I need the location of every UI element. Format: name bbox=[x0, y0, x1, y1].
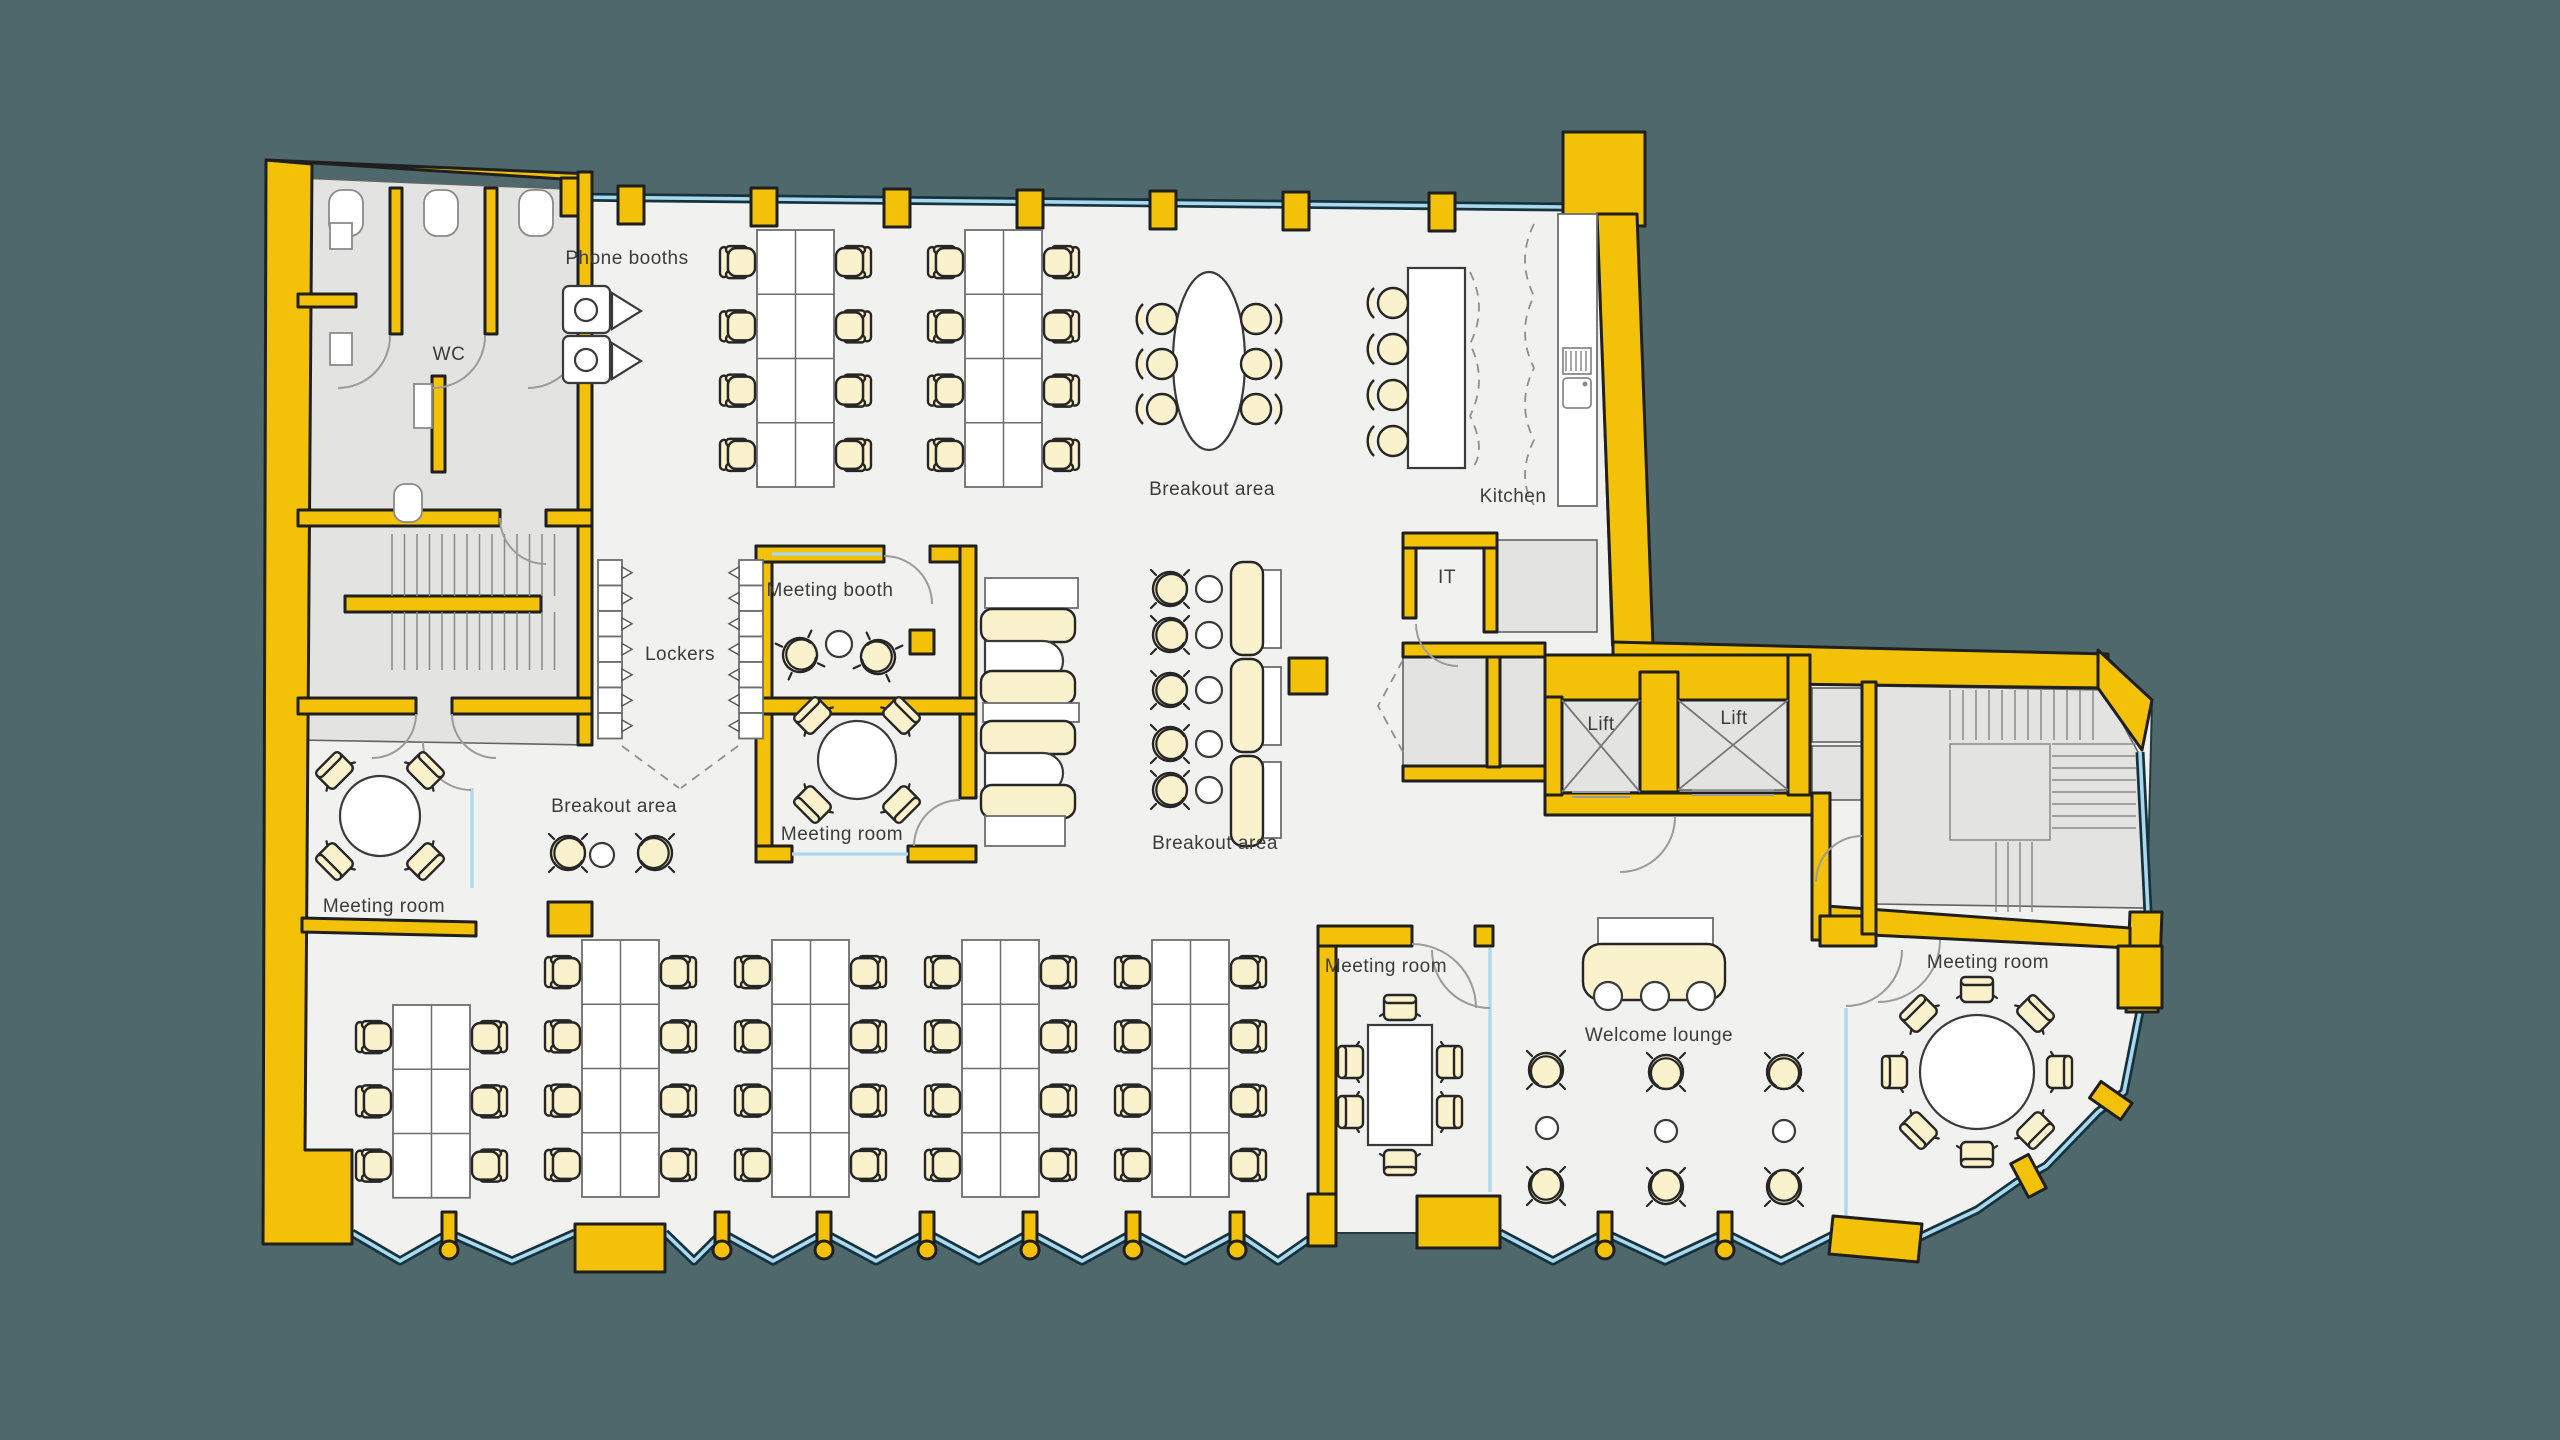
stool-chair bbox=[1368, 288, 1408, 318]
locker bbox=[598, 688, 622, 714]
office-chair bbox=[851, 1020, 886, 1052]
locker bbox=[598, 586, 622, 612]
office-chair bbox=[661, 1020, 696, 1052]
meeting-chair bbox=[1380, 995, 1420, 1020]
office-chair bbox=[356, 1085, 391, 1117]
office-chair bbox=[1044, 375, 1079, 407]
office-chair bbox=[356, 1021, 391, 1053]
label-breakout-top: Breakout area bbox=[1149, 479, 1275, 500]
office-chair bbox=[735, 1085, 770, 1117]
locker bbox=[739, 611, 763, 637]
round-table bbox=[1920, 1015, 2034, 1129]
armchair bbox=[1765, 1168, 1803, 1206]
meeting-chair bbox=[1437, 1042, 1462, 1082]
round-table bbox=[818, 721, 896, 799]
office-chair bbox=[1115, 956, 1150, 988]
stool-chair bbox=[1137, 394, 1177, 424]
label-meeting-room-bottom: Meeting room bbox=[1325, 956, 1447, 977]
desk-bank bbox=[1152, 940, 1229, 1197]
kitchen-island bbox=[1408, 268, 1465, 468]
riser-zone-center bbox=[1403, 650, 1545, 768]
locker bbox=[739, 713, 763, 739]
label-lift-right: Lift bbox=[1720, 708, 1748, 729]
label-breakout-middle: Breakout area bbox=[1152, 833, 1278, 854]
floor-plan: Phone booths WC Breakout area Kitchen IT… bbox=[0, 0, 2560, 1440]
office-chair bbox=[545, 956, 580, 988]
locker bbox=[598, 611, 622, 637]
desk-bank bbox=[965, 230, 1042, 487]
office-chair bbox=[356, 1150, 391, 1182]
oval-table bbox=[1173, 272, 1245, 450]
office-chair bbox=[836, 439, 871, 471]
office-chair bbox=[1231, 1149, 1266, 1181]
side-table bbox=[1196, 576, 1222, 602]
label-it: IT bbox=[1438, 567, 1456, 588]
label-meeting-room-left: Meeting room bbox=[323, 896, 445, 917]
desk-bank bbox=[582, 940, 659, 1197]
office-chair bbox=[735, 956, 770, 988]
armchair bbox=[1765, 1053, 1803, 1091]
office-chair bbox=[836, 310, 871, 342]
office-chair bbox=[720, 439, 755, 471]
meeting-table bbox=[1368, 1025, 1432, 1145]
meeting-chair bbox=[1957, 1142, 1997, 1167]
side-table-yellow bbox=[1289, 658, 1327, 694]
locker bbox=[598, 662, 622, 688]
side-table bbox=[1687, 982, 1715, 1010]
meeting-chair bbox=[1338, 1092, 1363, 1132]
toilet bbox=[424, 190, 458, 236]
side-table bbox=[1196, 677, 1222, 703]
armchair bbox=[1151, 725, 1189, 763]
office-chair bbox=[1231, 1085, 1266, 1117]
office-chair bbox=[1115, 1149, 1150, 1181]
office-chair bbox=[851, 1085, 886, 1117]
label-lockers: Lockers bbox=[645, 644, 715, 665]
meeting-chair bbox=[1338, 1042, 1363, 1082]
stool-chair bbox=[1241, 394, 1281, 424]
stool-chair bbox=[1137, 349, 1177, 379]
stool-chair bbox=[1368, 334, 1408, 364]
office-chair bbox=[928, 310, 963, 342]
office-chair bbox=[661, 1149, 696, 1181]
locker bbox=[739, 688, 763, 714]
locker bbox=[598, 713, 622, 739]
sink bbox=[330, 333, 352, 365]
office-chair bbox=[1115, 1085, 1150, 1117]
meeting-chair bbox=[1380, 1150, 1420, 1175]
office-chair bbox=[472, 1021, 507, 1053]
wall-corner-ne bbox=[1563, 132, 1645, 226]
stool-chair bbox=[1137, 304, 1177, 334]
office-chair bbox=[925, 1149, 960, 1181]
label-meeting-booth: Meeting booth bbox=[767, 580, 894, 601]
office-chair bbox=[1231, 956, 1266, 988]
meeting-chair bbox=[1437, 1092, 1462, 1132]
stool-chair bbox=[1368, 426, 1408, 456]
office-chair bbox=[1044, 246, 1079, 278]
label-phone-booths: Phone booths bbox=[565, 248, 688, 269]
office-chair bbox=[1115, 1020, 1150, 1052]
office-chair bbox=[720, 375, 755, 407]
armchair bbox=[636, 834, 674, 872]
office-chair bbox=[661, 1085, 696, 1117]
office-chair bbox=[1041, 1149, 1076, 1181]
office-chair bbox=[545, 1085, 580, 1117]
label-welcome-lounge: Welcome lounge bbox=[1585, 1025, 1733, 1046]
riser-zone-it bbox=[1497, 540, 1597, 632]
label-meeting-room-center: Meeting room bbox=[781, 824, 903, 845]
armchair bbox=[1647, 1168, 1685, 1206]
locker bbox=[739, 637, 763, 663]
office-chair bbox=[1041, 1020, 1076, 1052]
side-table bbox=[1196, 777, 1222, 803]
office-chair bbox=[928, 439, 963, 471]
sink bbox=[414, 384, 432, 428]
side-table-yellow bbox=[910, 630, 934, 654]
side-table bbox=[1196, 731, 1222, 757]
locker bbox=[739, 586, 763, 612]
sink bbox=[330, 223, 352, 249]
stool-chair bbox=[1241, 304, 1281, 334]
side-table bbox=[1594, 982, 1622, 1010]
armchair bbox=[1527, 1167, 1565, 1205]
office-chair bbox=[928, 375, 963, 407]
office-chair bbox=[661, 956, 696, 988]
office-chair bbox=[1041, 1085, 1076, 1117]
office-chair bbox=[1044, 439, 1079, 471]
office-chair bbox=[735, 1020, 770, 1052]
label-wc: WC bbox=[433, 344, 466, 365]
office-chair bbox=[928, 246, 963, 278]
office-chair bbox=[925, 1085, 960, 1117]
office-chair bbox=[851, 956, 886, 988]
armchair bbox=[1151, 671, 1189, 709]
round-table bbox=[340, 776, 420, 856]
meeting-chair bbox=[1957, 977, 1997, 1002]
office-chair bbox=[925, 1020, 960, 1052]
office-chair bbox=[720, 310, 755, 342]
desk-bank bbox=[772, 940, 849, 1197]
toilet bbox=[394, 484, 422, 522]
armchair bbox=[1151, 616, 1189, 654]
office-chair bbox=[720, 246, 755, 278]
side-table bbox=[1655, 1120, 1677, 1142]
desk-bank bbox=[962, 940, 1039, 1197]
stool-chair bbox=[1241, 349, 1281, 379]
desk-bank bbox=[393, 1005, 470, 1198]
label-breakout-left: Breakout area bbox=[551, 796, 677, 817]
meeting-chair bbox=[1882, 1052, 1907, 1092]
locker bbox=[598, 637, 622, 663]
banquette-booths bbox=[981, 578, 1079, 846]
office-chair bbox=[836, 246, 871, 278]
armchair bbox=[1151, 771, 1189, 809]
armchair bbox=[1151, 570, 1189, 608]
stairwell-right bbox=[1876, 686, 2144, 908]
armchair bbox=[1527, 1051, 1565, 1089]
office-chair bbox=[472, 1085, 507, 1117]
side-table bbox=[1196, 622, 1222, 648]
label-kitchen: Kitchen bbox=[1480, 486, 1547, 507]
locker bbox=[739, 662, 763, 688]
side-table bbox=[1641, 982, 1669, 1010]
office-chair bbox=[545, 1149, 580, 1181]
office-chair bbox=[925, 956, 960, 988]
side-table bbox=[1773, 1120, 1795, 1142]
desk-bank bbox=[757, 230, 834, 487]
label-meeting-room-right: Meeting room bbox=[1927, 952, 2049, 973]
office-chair bbox=[851, 1149, 886, 1181]
toilet bbox=[519, 190, 553, 236]
locker bbox=[739, 560, 763, 586]
office-chair bbox=[472, 1150, 507, 1182]
locker bbox=[598, 560, 622, 586]
office-chair bbox=[1231, 1020, 1266, 1052]
label-lift-left: Lift bbox=[1587, 714, 1615, 735]
floor-plan-canvas: Phone booths WC Breakout area Kitchen IT… bbox=[0, 0, 2560, 1440]
side-table bbox=[590, 843, 614, 867]
office-chair bbox=[836, 375, 871, 407]
meeting-chair bbox=[2047, 1052, 2072, 1092]
armchair bbox=[549, 834, 587, 872]
armchair bbox=[1647, 1053, 1685, 1091]
office-chair bbox=[545, 1020, 580, 1052]
side-table bbox=[826, 631, 852, 657]
hob bbox=[1563, 348, 1591, 374]
office-chair bbox=[735, 1149, 770, 1181]
side-table bbox=[1536, 1117, 1558, 1139]
stool-chair bbox=[1368, 380, 1408, 410]
office-chair bbox=[1041, 956, 1076, 988]
office-chair bbox=[1044, 310, 1079, 342]
